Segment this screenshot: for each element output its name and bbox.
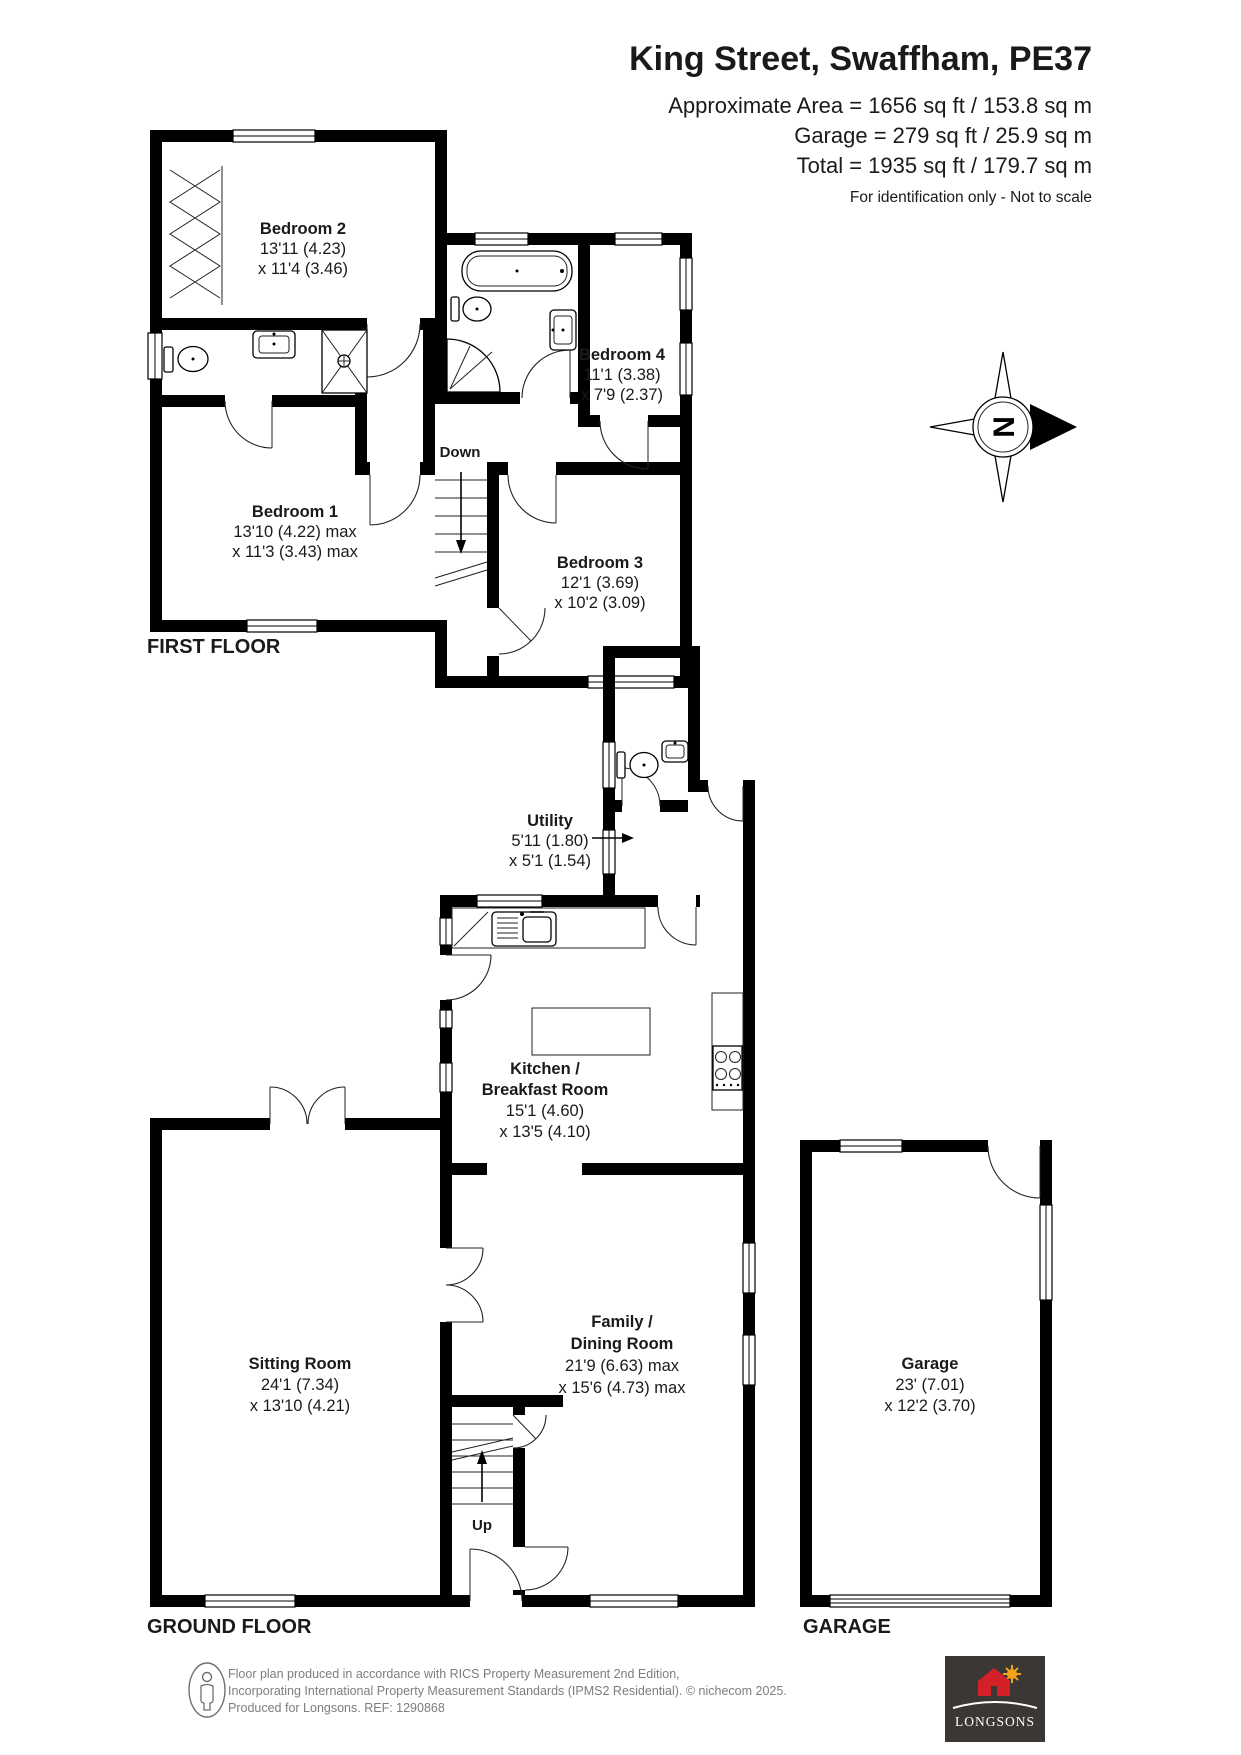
garage-area: Garage = 279 sq ft / 25.9 sq m (629, 121, 1092, 151)
stairs-label-down: Down (440, 444, 481, 461)
footer-line1: Floor plan produced in accordance with R… (228, 1666, 787, 1683)
compass-north-letter: N (987, 416, 1020, 438)
floor-label-ground: GROUND FLOOR (147, 1616, 311, 1639)
header: King Street, Swaffham, PE37 Approximate … (629, 40, 1092, 207)
person-icon (189, 1663, 225, 1717)
room-label-bedroom2: Bedroom 2 13'11 (4.23) x 11'4 (3.46) (258, 219, 348, 279)
footer-line2: Incorporating International Property Mea… (228, 1683, 787, 1700)
bathroom-sink-icon (550, 310, 576, 350)
stairs-label-up: Up (472, 1517, 492, 1534)
kitchen-island-counter (532, 1008, 650, 1055)
compass-rose: N (930, 352, 1077, 502)
kitchen-sink-icon (492, 912, 556, 946)
footer-line3: Produced for Longsons. REF: 1290868 (228, 1700, 787, 1717)
wc-toilet-icon (617, 752, 658, 778)
hob-icon (712, 993, 743, 1110)
footer-disclaimer: Floor plan produced in accordance with R… (228, 1666, 787, 1717)
room-label-garage: Garage 23' (7.01) x 12'2 (3.70) (884, 1354, 975, 1417)
approximate-area: Approximate Area = 1656 sq ft / 153.8 sq… (629, 91, 1092, 121)
ensuite-toilet-icon (164, 347, 208, 373)
room-label-bedroom1: Bedroom 1 13'10 (4.22) max x 11'3 (3.43)… (232, 502, 358, 562)
room-label-sitting-room: Sitting Room 24'1 (7.34) x 13'10 (4.21) (249, 1354, 352, 1417)
corner-shower-icon (447, 339, 500, 392)
floorplan-page: N (0, 0, 1241, 1755)
area-summary: Approximate Area = 1656 sq ft / 153.8 sq… (629, 91, 1092, 181)
floor-label-first: FIRST FLOOR (147, 636, 280, 659)
stairs-down (435, 472, 487, 586)
bath-icon (462, 251, 572, 291)
ground-floor-doors (270, 768, 743, 1601)
ensuite-shower-icon (322, 330, 367, 393)
total-area: Total = 1935 sq ft / 179.7 sq m (629, 151, 1092, 181)
ensuite-sink-icon (253, 331, 295, 358)
longsons-logo: LONGSONS (945, 1656, 1045, 1742)
wardrobe-icon (170, 166, 222, 305)
logo-wordmark: LONGSONS (955, 1714, 1035, 1729)
room-label-bedroom3: Bedroom 3 12'1 (3.69) x 10'2 (3.09) (554, 553, 645, 613)
room-label-bedroom4: Bedroom 4 11'1 (3.38) x 7'9 (2.37) (579, 345, 665, 405)
wc-sink-icon (662, 741, 688, 762)
floor-label-garage: GARAGE (803, 1616, 891, 1639)
stairs-up (452, 1424, 513, 1504)
room-label-family-dining: Family / Dining Room 21'9 (6.63) max x 1… (559, 1311, 686, 1399)
scale-note: For identification only - Not to scale (629, 189, 1092, 207)
room-label-kitchen: Kitchen / Breakfast Room 15'1 (4.60) x 1… (482, 1059, 609, 1143)
bathroom-toilet-icon (451, 297, 491, 321)
ground-floor-plan (150, 646, 755, 1607)
room-label-utility: Utility 5'11 (1.80) x 5'1 (1.54) (509, 811, 591, 871)
page-title: King Street, Swaffham, PE37 (629, 40, 1092, 79)
floorplan-drawing: N (0, 0, 1241, 1755)
